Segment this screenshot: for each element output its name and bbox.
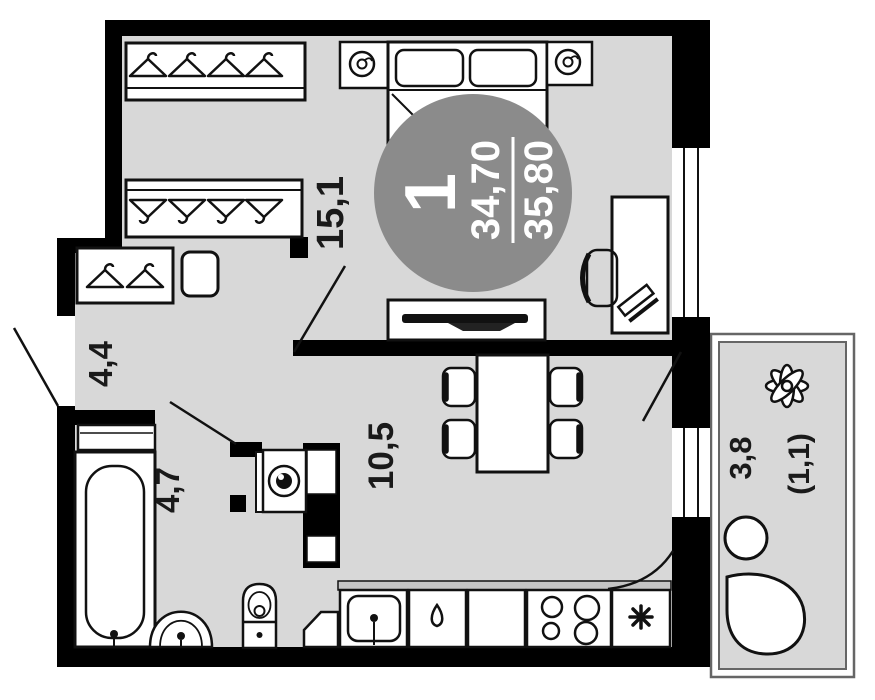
table-lamp-icon: [556, 50, 580, 74]
washing-machine: [256, 450, 306, 512]
label-hallway-area: 4,4: [82, 340, 119, 387]
tv-stand: [388, 300, 545, 340]
pillow: [396, 50, 463, 86]
wall-right-lower: [672, 517, 710, 667]
snowflake-icon: [630, 606, 652, 628]
hallway-pouf: [182, 252, 218, 296]
pillow: [470, 50, 536, 86]
faucet-icon: [177, 632, 185, 640]
entrance-door-leaf: [14, 328, 58, 406]
nightstand-left: [340, 42, 388, 88]
flower-icon: [766, 365, 808, 407]
wall-closet-stub: [290, 237, 308, 258]
label-kitchen-area: 10,5: [362, 422, 401, 490]
label-bedroom-area: 15,1: [310, 176, 352, 250]
wall-right-middle: [672, 317, 710, 428]
bathtub: [75, 452, 155, 648]
wall-left-lower: [57, 406, 75, 667]
wardrobe-bottom: [126, 180, 302, 237]
counter-strip: [338, 581, 671, 590]
kitchen-counter: [304, 581, 671, 647]
kitchen-cabinet: [409, 590, 466, 647]
faucet-icon: [110, 630, 118, 638]
desk: [612, 197, 668, 333]
label-bathroom-area: 4,7: [149, 467, 186, 513]
floorplan-drawing: 15,1 4,4 4,7 10,5 3,8 (1,1) 1 34,70 35,8…: [0, 0, 875, 700]
badge-total-area: 35,80: [517, 140, 561, 240]
balcony-door: [672, 428, 710, 517]
label-balcony-area: 3,8: [723, 436, 758, 479]
wall-bathroom-stub: [230, 495, 246, 512]
faucet-icon: [370, 614, 378, 622]
wall-bathroom-top: [75, 410, 155, 425]
wall-left-closet: [105, 20, 122, 253]
floorplan-page: 15,1 4,4 4,7 10,5 3,8 (1,1) 1 34,70 35,8…: [0, 0, 875, 700]
stove: [527, 590, 611, 647]
window-bedroom: [672, 148, 710, 317]
dining-table: [477, 355, 548, 472]
wall-left-hall-upper: [57, 253, 75, 316]
bathroom-shelf: [78, 425, 155, 450]
wardrobe-top: [126, 43, 305, 100]
fridge: [612, 590, 670, 647]
kitchen-cabinet: [468, 590, 525, 647]
hallway-wardrobe: [77, 248, 173, 303]
kitchen-sink-unit: [340, 590, 407, 647]
area-badge: 1 34,70 35,80: [374, 94, 572, 292]
tv-icon: [402, 314, 528, 323]
toilet: [243, 584, 276, 648]
balcony-stool: [725, 517, 767, 559]
label-balcony-reduced-area: (1,1): [783, 433, 816, 495]
wall-bottom: [57, 647, 710, 667]
wall-top: [105, 20, 710, 36]
badge-living-area: 34,70: [464, 140, 508, 240]
nightstand-right: [547, 42, 592, 85]
wall-right-upper: [672, 20, 710, 148]
badge-room-count: 1: [391, 173, 471, 213]
table-lamp-icon: [350, 52, 374, 76]
